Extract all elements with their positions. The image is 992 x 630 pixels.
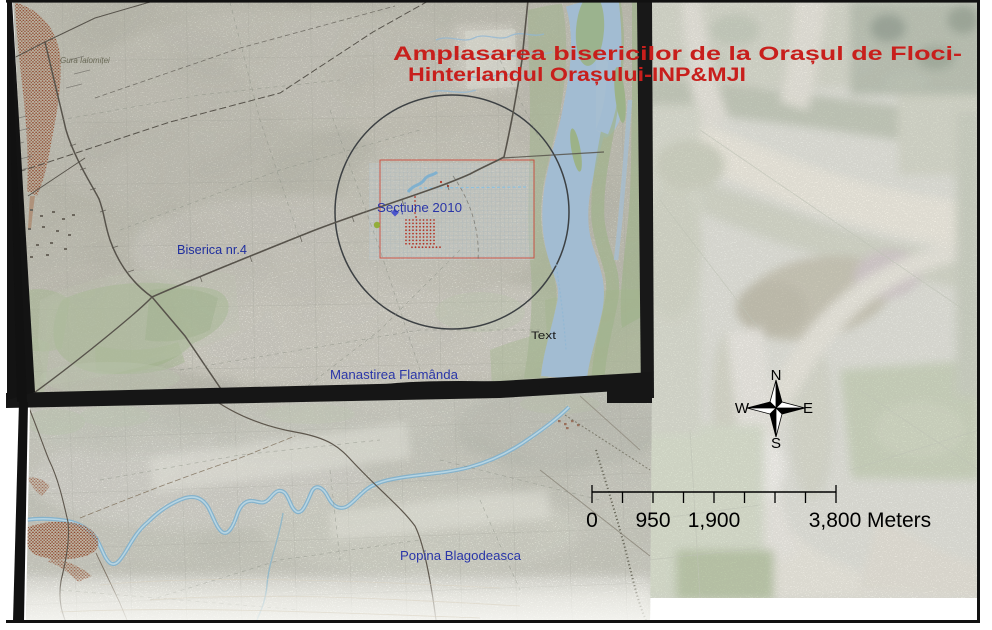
svg-text:Popina Blagodeasca: Popina Blagodeasca [400,549,521,563]
svg-text:Secțiune 2010: Secțiune 2010 [377,201,462,215]
svg-text:S: S [771,435,781,452]
svg-text:3,800: 3,800 [809,509,862,532]
svg-text:1,900: 1,900 [688,509,741,532]
svg-text:E: E [803,400,813,417]
svg-text:Hinterlandul Orașului-INP&MJI: Hinterlandul Orașului-INP&MJI [408,65,746,86]
svg-text:Meters: Meters [867,509,931,532]
svg-text:950: 950 [635,509,670,532]
svg-text:Biserica nr.4: Biserica nr.4 [177,243,247,257]
svg-text:Amplasarea bisericilor de la O: Amplasarea bisericilor de la Orașul de F… [393,44,962,65]
svg-text:Text: Text [531,330,556,342]
svg-text:0: 0 [586,509,598,532]
svg-text:Manastirea Flamânda: Manastirea Flamânda [330,368,458,382]
svg-text:W: W [735,400,750,417]
svg-text:N: N [771,367,782,384]
svg-text:Gura Ialomiței: Gura Ialomiței [60,56,110,65]
